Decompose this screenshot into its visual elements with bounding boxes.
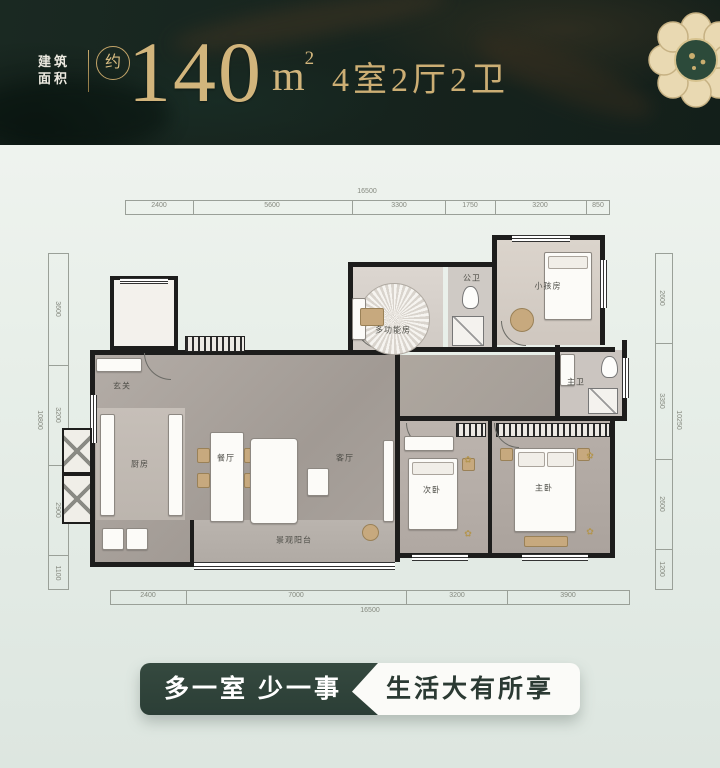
second-wardrobe	[456, 423, 486, 437]
room-label-master-bedroom: 主卧	[535, 483, 553, 494]
pillow	[548, 256, 588, 269]
building-area-label: 建筑 面积	[38, 53, 70, 87]
building-area-label-line1: 建筑	[38, 53, 70, 70]
slogan-right: 生活大有所享	[352, 663, 580, 715]
dim-line	[48, 253, 49, 590]
coffee-table	[307, 468, 329, 496]
dim-tick	[655, 343, 672, 344]
dim-tick	[629, 590, 630, 604]
dim-bottom-seg: 7000	[288, 592, 304, 599]
poster: 建筑 面积 约 140 m2 4室2厅2卫 16500 2400	[0, 0, 720, 768]
dim-tick	[655, 589, 672, 590]
dim-tick	[186, 590, 187, 604]
dim-tick	[406, 590, 407, 604]
bed-bench	[524, 536, 568, 547]
equipment-platform	[62, 428, 92, 474]
dim-tick	[125, 200, 126, 214]
area-unit: m2	[272, 48, 314, 101]
room-label-guest-bath: 公卫	[463, 273, 481, 284]
washer	[102, 528, 124, 550]
dim-line	[68, 253, 69, 590]
wall-segment	[492, 235, 497, 352]
dim-line	[110, 590, 630, 591]
header-band: 建筑 面积 约 140 m2 4室2厅2卫	[0, 0, 720, 145]
bay-window-room	[110, 276, 178, 350]
window	[622, 358, 629, 398]
wall-segment	[488, 421, 492, 553]
toilet	[601, 356, 618, 378]
multi-seat	[360, 308, 384, 326]
corner-ornament-icon: ✿	[586, 451, 594, 462]
desk	[404, 436, 454, 451]
dim-left-seg: 1100	[54, 565, 61, 580]
room-label-multi: 多功能房	[375, 325, 411, 336]
wall-segment	[190, 520, 194, 566]
corner-ornament-icon: ✿	[464, 529, 472, 540]
dim-bottom-seg: 3900	[560, 592, 576, 599]
dim-tick	[655, 459, 672, 460]
area-unit-base: m	[272, 54, 305, 100]
dryer	[126, 528, 148, 550]
dim-top-seg: 2400	[151, 202, 167, 209]
dim-tick	[495, 200, 496, 214]
dim-tick	[586, 200, 587, 214]
window	[600, 260, 607, 308]
dim-tick	[507, 590, 508, 604]
dining-table	[210, 432, 244, 522]
dim-tick	[193, 200, 194, 214]
shower	[452, 316, 484, 346]
dim-top-seg: 850	[592, 202, 604, 209]
dim-bottom-seg: 2400	[140, 592, 156, 599]
room-label-kids: 小孩房	[535, 281, 562, 292]
pillow	[547, 452, 574, 467]
kitchen-counter	[168, 414, 183, 516]
dim-line	[110, 604, 630, 605]
dim-bottom-seg: 3200	[449, 592, 465, 599]
dim-right-seg: 2600	[658, 496, 665, 512]
dim-line	[125, 214, 610, 215]
dim-tick	[445, 200, 446, 214]
pillow	[518, 452, 545, 467]
dim-tick	[48, 253, 68, 254]
room-label-dining: 餐厅	[217, 453, 235, 464]
wall-segment	[348, 262, 497, 267]
dim-tick	[48, 555, 68, 556]
slogan-left: 多一室 少一事	[140, 663, 378, 715]
room-label-kitchen: 厨房	[131, 459, 149, 470]
window	[512, 235, 570, 242]
wall-segment	[90, 562, 194, 567]
plant	[362, 524, 379, 541]
room-label-second-bedroom: 次卧	[423, 485, 441, 496]
toilet	[462, 286, 479, 309]
wall-segment	[400, 347, 615, 352]
dim-left-seg: 3600	[54, 301, 61, 317]
dim-tick	[609, 200, 610, 214]
dim-left-seg: 3200	[54, 407, 61, 423]
dim-top-seg: 5600	[264, 202, 280, 209]
corner-ornament-icon: ✿	[464, 455, 472, 466]
pillow	[412, 462, 454, 475]
dim-top-seg: 1750	[462, 202, 478, 209]
shower	[588, 388, 618, 414]
flower-ornament-icon	[648, 12, 720, 108]
balcony-window	[194, 562, 395, 570]
dim-right-seg: 2600	[658, 290, 665, 306]
wall-segment	[90, 350, 400, 355]
wall-segment	[395, 350, 400, 562]
window	[120, 278, 168, 284]
corner-ornament-icon: ✿	[586, 527, 594, 538]
area-unit-sup: 2	[305, 48, 315, 69]
header-divider	[88, 50, 89, 92]
dim-top-total: 16500	[357, 188, 376, 195]
dim-tick	[110, 590, 111, 604]
window	[522, 554, 588, 561]
room-count-text: 4室2厅2卫	[332, 52, 509, 101]
dim-left-total: 10800	[36, 410, 43, 429]
dim-bottom-total: 16500	[360, 607, 379, 614]
tv-console	[383, 440, 394, 522]
dim-right-seg: 1200	[658, 561, 665, 577]
window	[412, 554, 468, 561]
dim-tick	[48, 589, 68, 590]
dim-line	[655, 253, 656, 590]
dim-line	[672, 253, 673, 590]
dim-right-total: 10250	[675, 410, 682, 429]
dim-top-seg: 3200	[532, 202, 548, 209]
dim-left-seg: 2900	[54, 502, 61, 518]
room-label-balcony: 景观阳台	[276, 535, 312, 546]
approx-badge: 约	[96, 46, 130, 80]
wall-segment	[395, 416, 615, 421]
sofa	[250, 438, 298, 524]
dim-right-seg: 3350	[658, 393, 665, 409]
building-area-label-line2: 面积	[38, 70, 70, 87]
shoe-cabinet	[96, 358, 142, 372]
dining-chair	[197, 473, 210, 488]
dim-tick	[655, 549, 672, 550]
kitchen-counter	[100, 414, 115, 516]
room-label-living: 客厅	[336, 453, 354, 464]
area-value: 140	[128, 22, 263, 122]
dim-line	[125, 200, 610, 201]
floorplan: 16500 2400 5600 3300 1750 3200 850 2400 …	[60, 190, 692, 650]
dim-tick	[352, 200, 353, 214]
room-label-entry: 玄关	[113, 381, 131, 392]
room-label-master-bath: 主卫	[567, 377, 585, 388]
wall-segment	[610, 416, 615, 558]
louver-window	[185, 336, 245, 352]
nightstand	[500, 448, 513, 461]
equipment-platform	[62, 474, 92, 524]
dim-tick	[655, 253, 672, 254]
slogan-banner: 多一室 少一事 生活大有所享	[140, 663, 580, 715]
dim-tick	[48, 365, 68, 366]
dining-chair	[197, 448, 210, 463]
dim-top-seg: 3300	[391, 202, 407, 209]
bean-chair	[510, 308, 534, 332]
